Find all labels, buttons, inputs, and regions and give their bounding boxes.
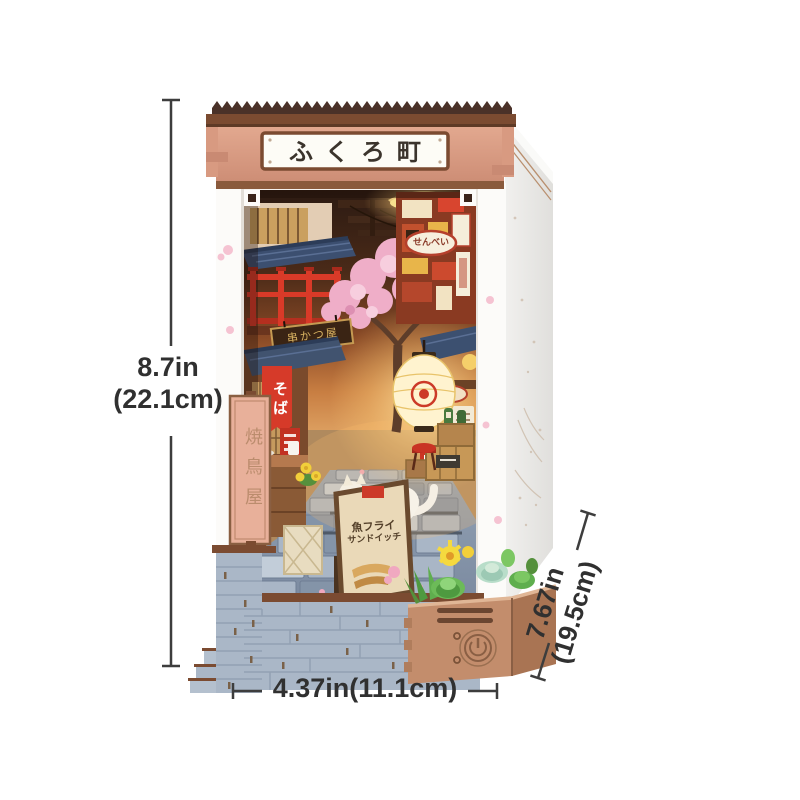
pillar-sign-text: 焼鳥屋 bbox=[237, 406, 265, 538]
width-dimension-label: 4.37in(11.1cm) bbox=[255, 673, 475, 705]
height-cm: (22.1cm) bbox=[88, 384, 248, 416]
marquee-sign-text: ふくろ町 bbox=[262, 137, 448, 167]
product-photo: 8.7in (22.1cm) 4.37in(11.1cm) 7.67in (19… bbox=[0, 0, 800, 800]
stairs bbox=[188, 648, 216, 693]
senbei-sign-text: せんべい bbox=[406, 236, 456, 250]
side-wall bbox=[505, 114, 553, 612]
power-icon bbox=[460, 630, 496, 666]
poster-wall bbox=[396, 192, 476, 324]
soba-banner-text: そば bbox=[263, 371, 291, 429]
height-inches: 8.7in bbox=[88, 352, 248, 384]
sandwich-board-text: 魚フライ サンドイッチ bbox=[340, 518, 408, 548]
height-dimension-label: 8.7in (22.1cm) bbox=[88, 352, 248, 416]
lattice-fence bbox=[284, 526, 322, 574]
